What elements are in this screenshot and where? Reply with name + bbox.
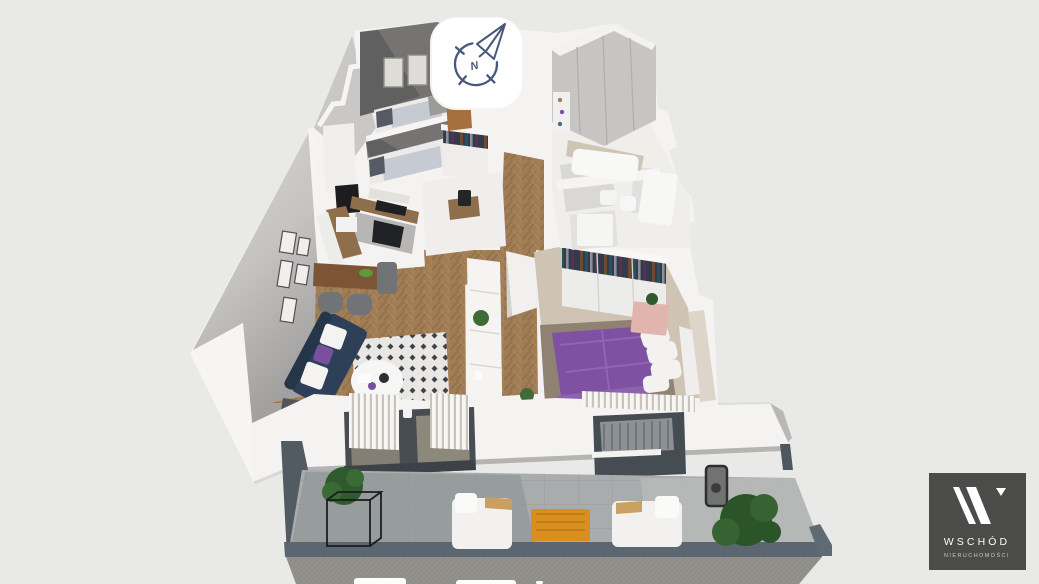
svg-text:NIERUCHOMOŚCI: NIERUCHOMOŚCI — [944, 551, 1010, 559]
svg-text:WSCHÓD: WSCHÓD — [944, 535, 1010, 548]
